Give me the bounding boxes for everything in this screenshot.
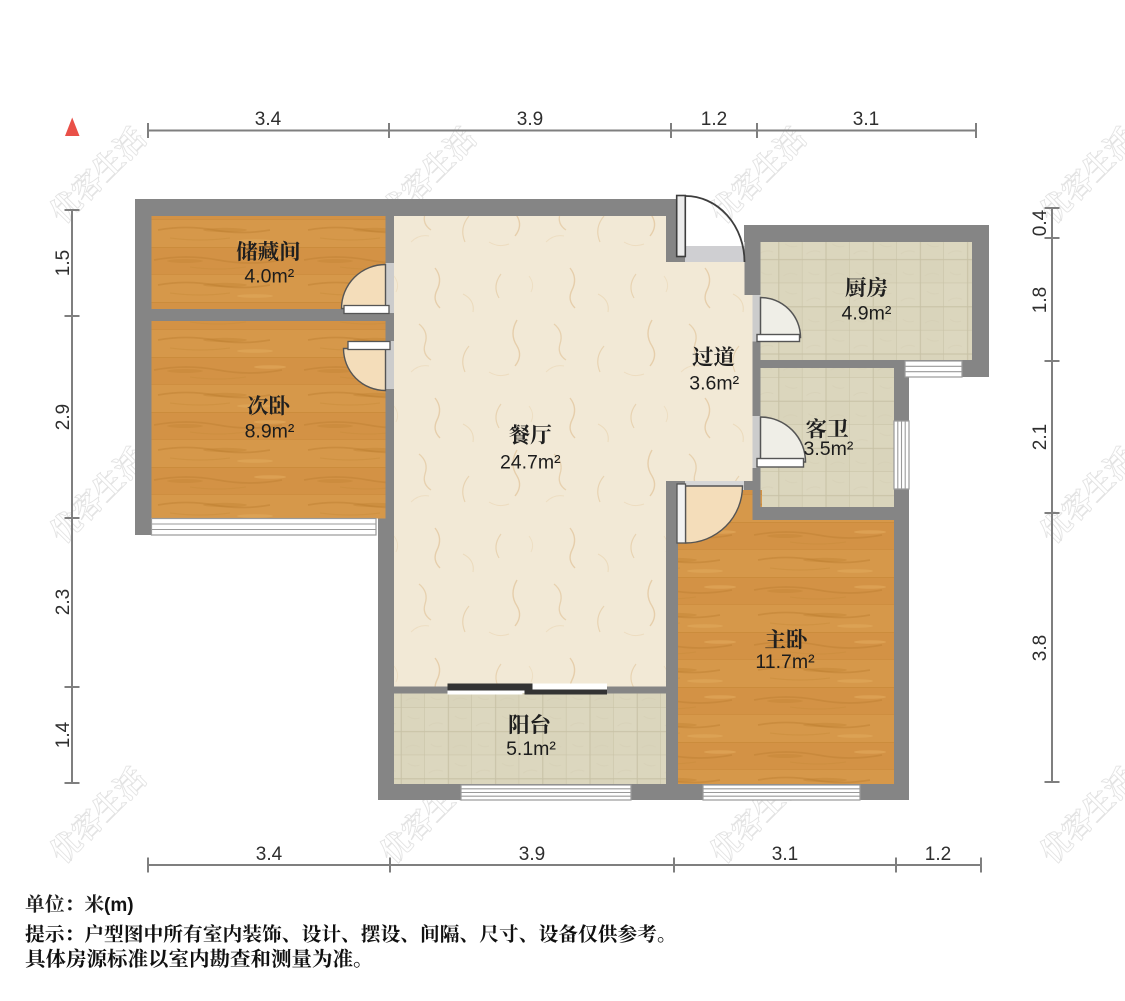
svg-text:1.8: 1.8 <box>1030 287 1051 313</box>
svg-text:5.1m²: 5.1m² <box>506 738 556 760</box>
svg-text:3.5m²: 3.5m² <box>803 438 853 460</box>
svg-text:0.4: 0.4 <box>1030 209 1051 236</box>
svg-text:3.1: 3.1 <box>853 109 879 130</box>
svg-text:4.0m²: 4.0m² <box>244 266 294 288</box>
svg-text:1.4: 1.4 <box>53 721 74 748</box>
svg-text:4.9m²: 4.9m² <box>841 302 891 324</box>
svg-text:3.4: 3.4 <box>255 109 282 130</box>
svg-text:(m): (m) <box>104 895 134 916</box>
svg-text:2.3: 2.3 <box>53 589 74 615</box>
svg-text:1.2: 1.2 <box>701 109 727 130</box>
svg-text:3.8: 3.8 <box>1030 635 1051 661</box>
svg-text:3.9: 3.9 <box>519 844 545 865</box>
svg-text:11.7m²: 11.7m² <box>755 651 815 673</box>
svg-text:2.9: 2.9 <box>53 404 74 430</box>
svg-text:3.6m²: 3.6m² <box>689 372 739 394</box>
svg-text:1.2: 1.2 <box>925 844 951 865</box>
svg-text:8.9m²: 8.9m² <box>245 420 295 442</box>
svg-text:24.7m²: 24.7m² <box>500 452 561 474</box>
svg-text:3.4: 3.4 <box>256 844 283 865</box>
svg-text:2.1: 2.1 <box>1030 424 1051 450</box>
svg-text:1.5: 1.5 <box>53 250 74 276</box>
svg-text:3.1: 3.1 <box>772 844 798 865</box>
svg-text:3.9: 3.9 <box>517 109 543 130</box>
